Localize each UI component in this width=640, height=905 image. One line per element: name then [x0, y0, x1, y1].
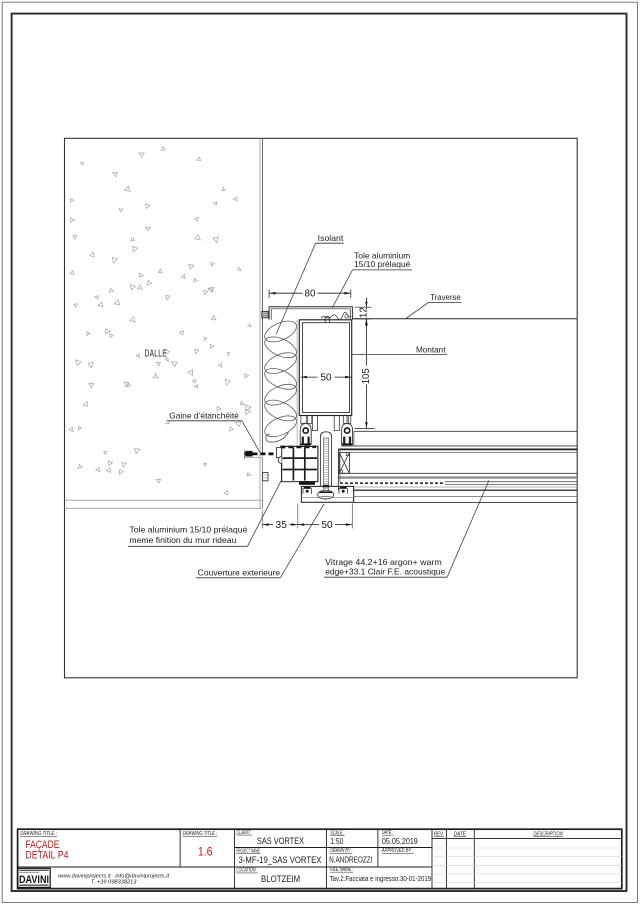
svg-text:BLOTZEIM: BLOTZEIM — [261, 874, 300, 884]
svg-text:DRAWING TITLE :: DRAWING TITLE : — [183, 831, 218, 837]
svg-text:05.05.2019: 05.05.2019 — [382, 836, 418, 846]
svg-text:DALLE: DALLE — [145, 349, 167, 360]
svg-text:meme finition du mur rideau: meme finition du mur rideau — [129, 535, 236, 545]
svg-text:APPROVED BY :: APPROVED BY : — [381, 848, 414, 854]
svg-text:DESCRIPTION: DESCRIPTION — [533, 831, 563, 837]
svg-text:1:50: 1:50 — [330, 836, 344, 846]
svg-text:SAS VORTEX: SAS VORTEX — [257, 836, 304, 846]
svg-text:105: 105 — [361, 368, 372, 385]
svg-text:Traverse: Traverse — [430, 292, 461, 302]
svg-text:Vitrage 44.2+16 argon+ warm: Vitrage 44.2+16 argon+ warm — [325, 557, 442, 567]
svg-text:Isolant: Isolant — [318, 233, 344, 243]
svg-text:12: 12 — [359, 307, 370, 318]
svg-text:Gaine d’étanchéité: Gaine d’étanchéité — [169, 410, 239, 420]
svg-text:50: 50 — [321, 372, 333, 383]
svg-text:15/10 prélaqué: 15/10 prélaqué — [354, 259, 410, 269]
svg-text:LOCATION :: LOCATION : — [236, 868, 258, 874]
svg-text:T. +39 098338213: T. +39 098338213 — [91, 880, 138, 886]
svg-text:3-MF-19_SAS VORTEX: 3-MF-19_SAS VORTEX — [239, 855, 322, 865]
svg-text:CLIENT :: CLIENT : — [236, 830, 252, 836]
svg-text:edge+33.1 Clair F.E. acoustiqu: edge+33.1 Clair F.E. acoustique — [325, 567, 445, 577]
svg-text:FILE NAME :: FILE NAME : — [330, 867, 354, 873]
svg-text:35: 35 — [276, 520, 288, 531]
svg-text:DATE: DATE — [454, 831, 467, 837]
svg-text:1.6: 1.6 — [198, 844, 213, 858]
svg-text:PROJECT NAME:: PROJECT NAME: — [236, 848, 260, 854]
svg-text:Tole aluminium 15/10 prélaqué: Tole aluminium 15/10 prélaqué — [129, 524, 247, 534]
svg-text:50: 50 — [321, 520, 333, 531]
svg-text:80: 80 — [305, 289, 317, 300]
svg-text:Couverture exterieure: Couverture exterieure — [198, 567, 281, 577]
svg-text:DETAIL P4: DETAIL P4 — [25, 849, 68, 861]
svg-text:DRAWING TITLE :: DRAWING TITLE : — [20, 831, 57, 837]
svg-text:Tav.2.Facciata e ingresso.30-0: Tav.2.Facciata e ingresso.30-01-2019 — [330, 874, 432, 883]
svg-text:REV.: REV. — [434, 831, 444, 837]
svg-text:Montant: Montant — [416, 344, 446, 354]
svg-text:N.ANDREOZZI: N.ANDREOZZI — [329, 854, 372, 864]
svg-text:DRAWN BY :: DRAWN BY : — [330, 848, 353, 854]
